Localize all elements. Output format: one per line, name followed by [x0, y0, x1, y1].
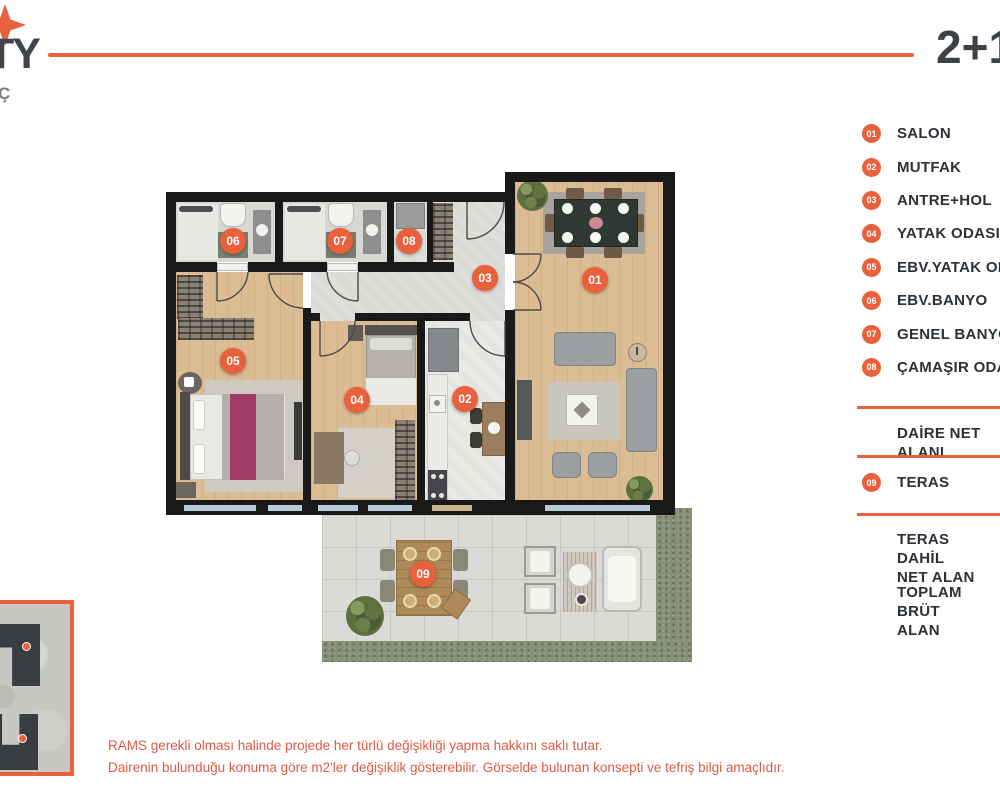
room-marker-camasir-odasi: 08 [396, 228, 422, 254]
room-marker-mutfak: 02 [452, 386, 478, 412]
nightstand [176, 482, 196, 498]
shower-07 [285, 204, 325, 260]
stool [575, 593, 588, 606]
pillow [193, 400, 205, 430]
legend-divider [857, 406, 1000, 409]
room-marker-teras: 09 [410, 561, 436, 587]
legend-label: MUTFAK [897, 159, 961, 176]
legend-label: EBV.BANYO [897, 292, 988, 309]
window [184, 505, 256, 511]
window [318, 505, 358, 511]
plate [427, 594, 441, 608]
toilet-07 [328, 203, 354, 227]
dining-chair [566, 188, 584, 199]
site-building [0, 624, 40, 686]
armchair [552, 452, 581, 478]
legend-label: EBV.YATAK ODASI [897, 259, 1000, 276]
legend-number-badge: 04 [862, 224, 881, 243]
plate [403, 594, 417, 608]
dining-chair [604, 247, 622, 258]
window [368, 505, 412, 511]
wardrobe [395, 420, 415, 504]
plate [488, 422, 500, 434]
legend-divider [857, 513, 1000, 516]
terrace-net-area-label: TERAS DAHİL NET ALAN [897, 530, 1000, 587]
plant [346, 596, 384, 636]
door-leaf [217, 263, 248, 271]
wardrobe [177, 275, 203, 319]
dining-chair [604, 188, 622, 199]
plate [618, 232, 629, 243]
room-marker-genel-banyo: 07 [327, 228, 353, 254]
pillow [370, 338, 412, 350]
legend-number-badge: 01 [862, 124, 881, 143]
legend-item-salon: 01 SALON [862, 117, 1000, 150]
wall [166, 192, 513, 202]
wall [427, 202, 433, 262]
logo-subtext: Ç [0, 84, 10, 104]
bed-headboard [180, 392, 190, 480]
sofa [554, 332, 616, 366]
desk [314, 432, 344, 484]
fridge-cabinet [428, 328, 459, 372]
legend-label: ÇAMAŞIR ODASI [897, 359, 1000, 376]
plate [618, 203, 629, 214]
wall [505, 172, 675, 182]
header-divider [48, 53, 914, 57]
plate [403, 547, 417, 561]
armchair [588, 452, 617, 478]
legend-number-badge: 07 [862, 325, 881, 344]
wall [166, 192, 176, 515]
wall [275, 202, 283, 262]
room-marker-salon: 01 [582, 267, 608, 293]
hall-closet [433, 203, 453, 260]
bed-sheet [366, 378, 416, 405]
burner [431, 474, 436, 479]
legend-number-badge: 03 [862, 191, 881, 210]
chair [380, 580, 395, 602]
room-marker-antre-hol: 03 [472, 265, 498, 291]
decor [184, 377, 194, 387]
wall [505, 310, 515, 500]
sofa [626, 368, 657, 452]
disclaimer: RAMS gerekli olması halinde projede her … [108, 735, 784, 778]
legend-label: YATAK ODASI [897, 225, 1000, 242]
site-building-marker-icon [22, 642, 31, 651]
door-leaf [327, 263, 358, 271]
wall [417, 321, 425, 500]
chair [453, 549, 468, 571]
dining-chair [566, 247, 584, 258]
legend-item-yatak-odasi: 04 YATAK ODASI [862, 217, 1000, 250]
legend-item-teras: 09 TERAS [862, 473, 949, 492]
tv-unit [517, 380, 532, 440]
unit-type-title: 2+1 [936, 20, 1000, 74]
legend-label: GENEL BANYO [897, 326, 1000, 343]
shower-06 [178, 204, 218, 260]
sink-07 [366, 224, 378, 236]
plate [590, 203, 601, 214]
bed-runner [230, 394, 256, 480]
legend-label: ANTRE+HOL [897, 192, 992, 209]
legend-number-badge: 05 [862, 258, 881, 277]
bed-headboard [365, 325, 417, 335]
legend-number-badge: 08 [862, 358, 881, 377]
wall [166, 262, 217, 272]
legend-label: SALON [897, 125, 951, 142]
burner [439, 493, 444, 498]
legend-item-mutfak: 02 MUTFAK [862, 150, 1000, 183]
legend-item-camasir-odasi: 08 ÇAMAŞIR ODASI [862, 351, 1000, 384]
faucet [434, 400, 440, 406]
legend-item-antre-hol: 03 ANTRE+HOL [862, 184, 1000, 217]
plant [517, 180, 548, 211]
legend-item-ebv-yatak-odasi: 05 EBV.YATAK ODASI [862, 251, 1000, 284]
wall [311, 313, 320, 321]
shower-head-icon [287, 206, 321, 212]
burner [439, 474, 444, 479]
wall-clock-icon [628, 343, 647, 362]
gross-area-label: TOPLAM BRÜT ALAN [897, 583, 1000, 640]
plant [626, 476, 653, 503]
logo-text: TY [0, 30, 39, 79]
dresser [178, 318, 254, 340]
wall [248, 262, 327, 272]
legend-divider [857, 455, 1000, 458]
centerpiece [589, 217, 603, 229]
window [268, 505, 302, 511]
wall [387, 202, 394, 262]
wall [355, 313, 470, 321]
cushion [608, 556, 636, 602]
legend-label: TERAS [897, 474, 949, 491]
room-legend: 01 SALON 02 MUTFAK 03 ANTRE+HOL 04 YATAK… [862, 117, 1000, 384]
room-marker-yatak-odasi: 04 [344, 387, 370, 413]
tv-unit [294, 402, 302, 460]
toilet-06 [220, 203, 246, 227]
plate [562, 203, 573, 214]
chair [470, 432, 482, 448]
terrace-hedge-bottom [322, 641, 692, 662]
desk-chair [344, 450, 360, 466]
terrace-slider-window [545, 505, 650, 511]
floor-plan-page: { "header": { "logo_text": "TY", "logo_s… [0, 0, 1000, 800]
wall [358, 262, 454, 272]
legend-item-ebv-banyo: 06 EBV.BANYO [862, 284, 1000, 317]
plate [562, 232, 573, 243]
washing-machine [396, 203, 425, 229]
burner [431, 493, 436, 498]
room-marker-ebv-banyo: 06 [220, 228, 246, 254]
chair [380, 549, 395, 571]
legend-number-badge: 02 [862, 158, 881, 177]
room-marker-ebv-yatak-odasi: 05 [220, 348, 246, 374]
terrace-door-threshold [432, 505, 472, 511]
clock-hand [636, 347, 638, 355]
round-table [567, 562, 593, 588]
plate [427, 547, 441, 561]
wall [505, 172, 515, 254]
disclaimer-line-1: RAMS gerekli olması halinde projede her … [108, 735, 784, 757]
pillow [193, 444, 205, 474]
disclaimer-line-2: Dairenin bulunduğu konuma göre m2'ler de… [108, 757, 784, 779]
cushion [530, 551, 550, 572]
terrace-hedge-right [656, 508, 692, 641]
legend-number-badge: 06 [862, 291, 881, 310]
site-plan-thumbnail [0, 600, 74, 776]
cushion [530, 588, 550, 609]
shower-head-icon [179, 206, 213, 212]
wall [663, 172, 675, 515]
nightstand [348, 325, 363, 341]
legend-number-badge: 09 [862, 473, 881, 492]
plate [590, 232, 601, 243]
wall [303, 308, 311, 500]
chair [470, 408, 482, 424]
site-building-marker-icon [18, 734, 27, 743]
sink-06 [256, 224, 268, 236]
legend-item-genel-banyo: 07 GENEL BANYO [862, 317, 1000, 350]
